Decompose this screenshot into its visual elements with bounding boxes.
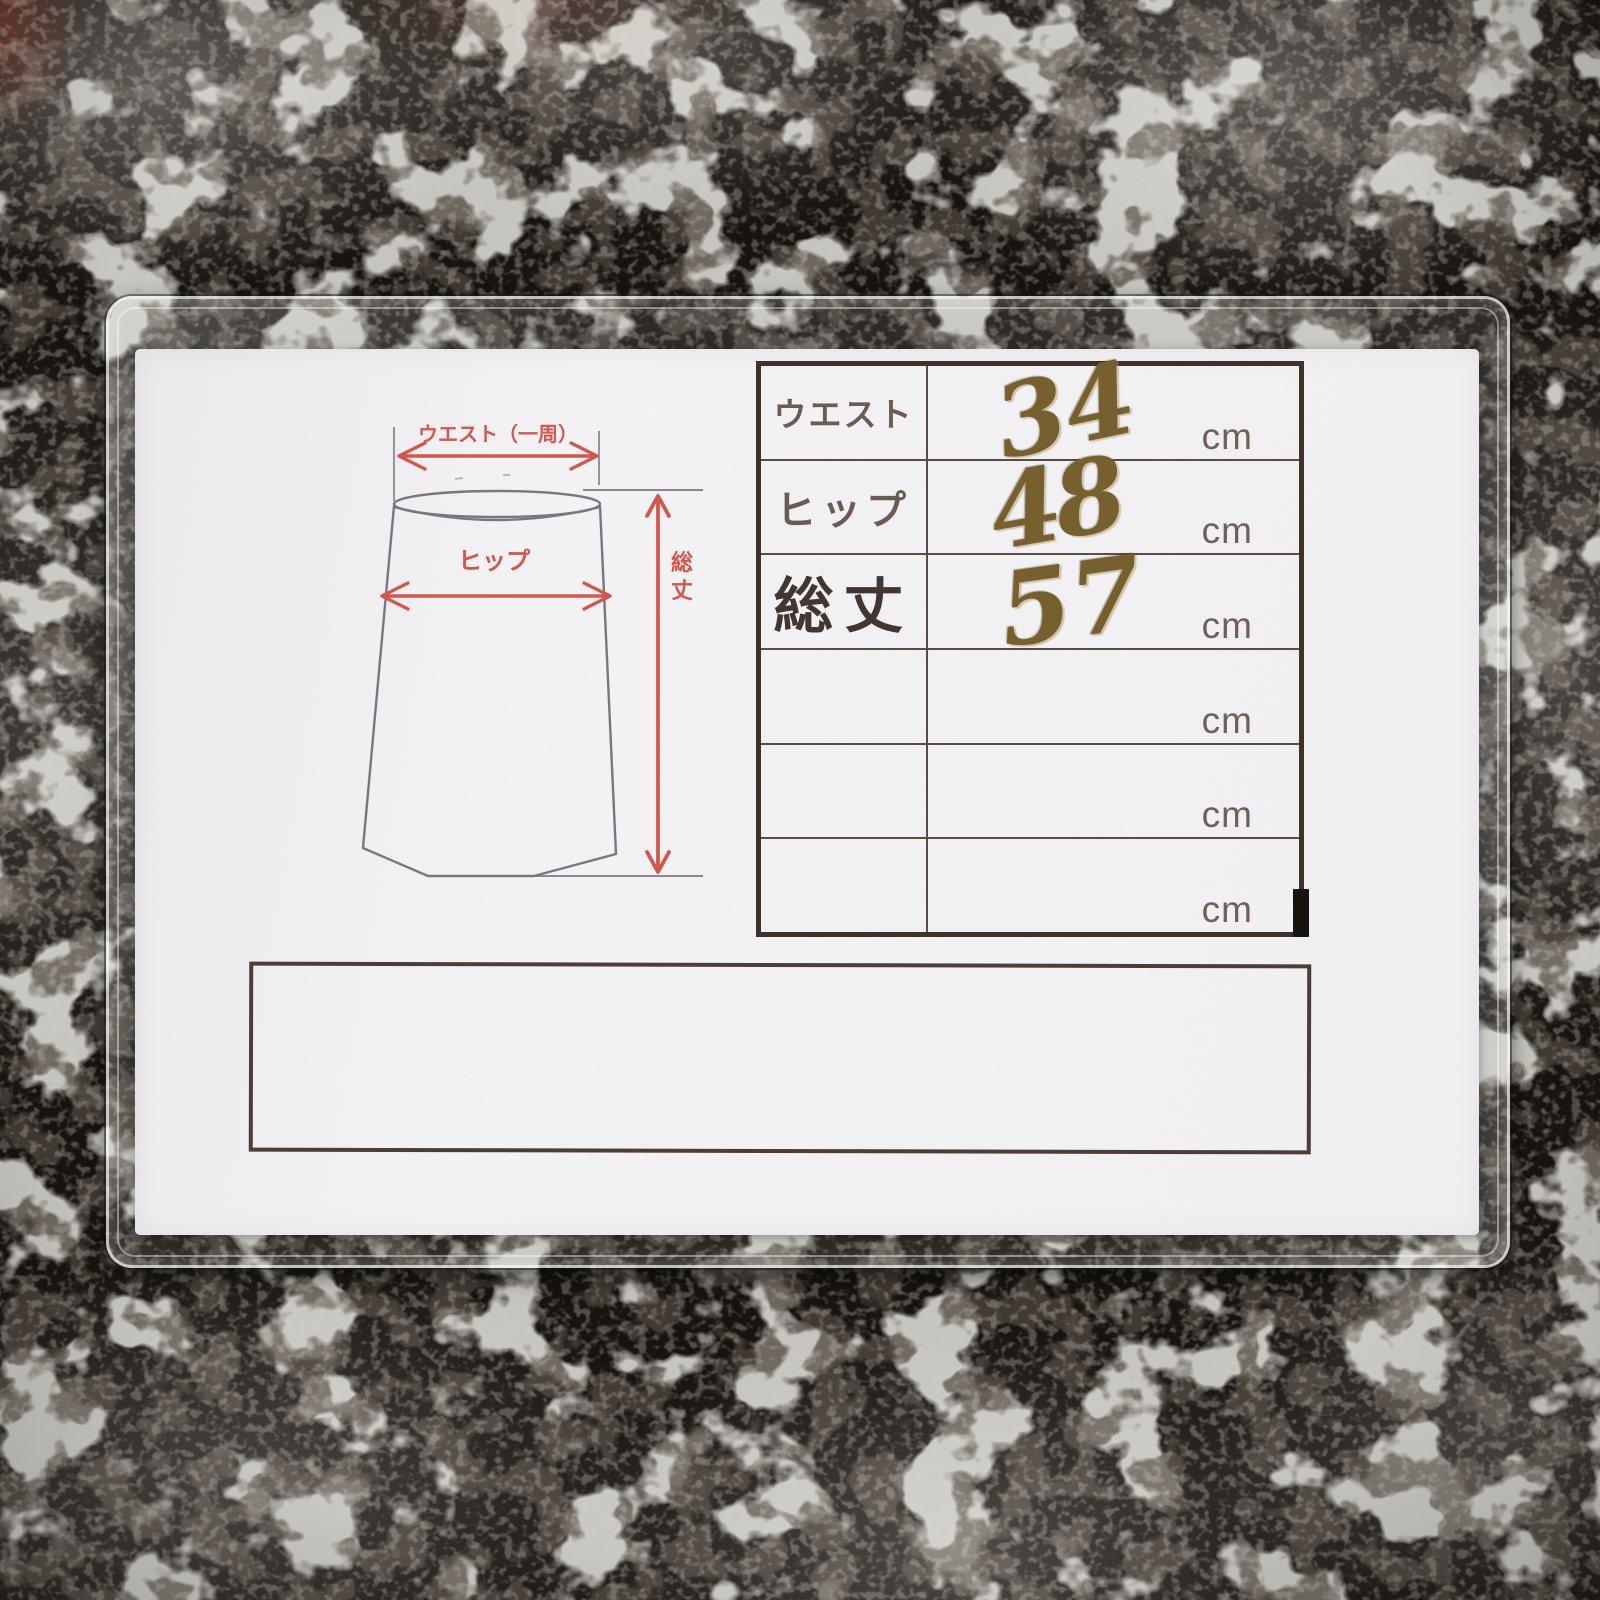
measurement-table: ウエスト 34 cm ヒップ 48 cm 総丈 57 [756,361,1304,937]
handwritten-value: 57 [994,542,1149,663]
unit-label: cm [1202,416,1253,458]
row-label: ヒップ [761,461,928,554]
waist-measure: ウエスト（一周） [399,423,597,469]
row-value-cell: 34 cm [928,366,1299,459]
notes-box [249,962,1311,1155]
length-label-char-top: 総 [671,550,693,575]
unit-label: cm [1202,794,1253,836]
row-label: ウエスト [761,366,928,459]
length-label-char-bottom: 丈 [671,578,693,603]
row-value-cell: cm [928,839,1299,932]
row-label [761,839,928,932]
unit-label: cm [1202,889,1253,931]
waist-measure-label: ウエスト（一周） [418,423,578,446]
hip-measure-label: ヒップ [458,548,531,575]
unit-label: cm [1202,605,1253,647]
photo-stage: ウエスト（一周） ヒップ 総 [0,0,1600,1600]
unit-label: cm [1202,700,1253,742]
plastic-sleeve: ウエスト（一周） ヒップ 総 [106,296,1510,1268]
total-length-measure: 総 丈 [647,496,693,872]
row-value-cell: cm [928,650,1299,743]
table-corner-ink-mark [1293,889,1309,937]
measurement-card: ウエスト（一周） ヒップ 総 [135,349,1479,1235]
table-row-hip: ヒップ 48 cm [761,461,1299,556]
table-row-length: 総丈 57 cm [761,555,1299,650]
row-label [761,745,928,838]
row-label [761,650,928,743]
table-row-empty: cm [761,839,1299,932]
row-label: 総丈 [761,555,928,648]
row-value-cell: 57 cm [928,555,1299,648]
hip-measure: ヒップ [382,548,610,609]
row-value-cell: cm [928,745,1299,838]
table-row-empty: cm [761,745,1299,840]
skirt-diagram: ウエスト（一周） ヒップ 総 [355,411,715,881]
unit-label: cm [1202,510,1253,552]
